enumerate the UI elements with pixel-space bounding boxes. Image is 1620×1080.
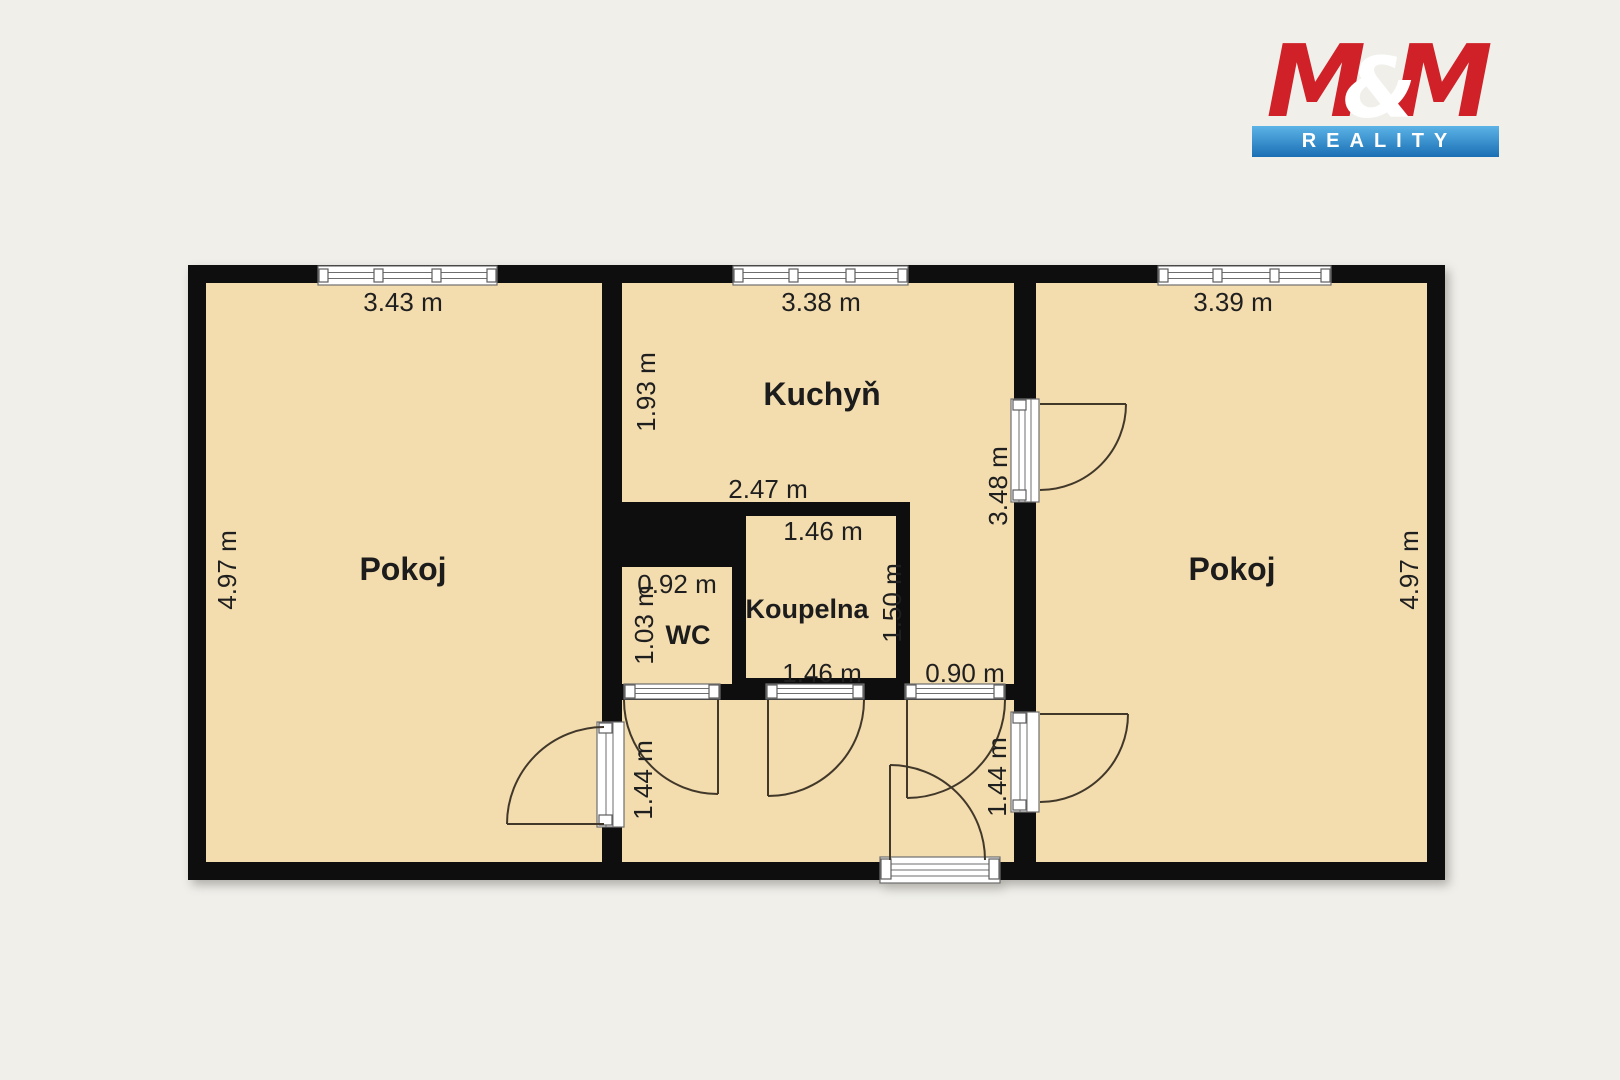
- dim-bath-bottom: 1.46 m: [782, 658, 862, 688]
- dim-top-left: 3.43 m: [363, 287, 443, 317]
- floorplan: Pokoj Kuchyň Koupelna WC Pokoj 3.43 m 3.…: [0, 0, 1620, 1080]
- room-label-koupelna: Koupelna: [745, 594, 869, 624]
- dim-side-left: 4.97 m: [212, 530, 242, 610]
- dim-hall-right: 1.44 m: [982, 737, 1012, 817]
- logo-ampersand: &: [1343, 44, 1408, 132]
- dim-kitchen-bottom: 2.47 m: [728, 474, 808, 504]
- window-left-room: [318, 266, 497, 285]
- floorplan-drawing: Pokoj Kuchyň Koupelna WC Pokoj 3.43 m 3.…: [188, 265, 1445, 883]
- page: { "logo": { "m1": "M", "amp": "&", "m2":…: [0, 0, 1620, 1080]
- dim-wc-left: 1.03 m: [629, 585, 659, 665]
- mm-reality-logo: M & M REALITY: [1252, 38, 1499, 157]
- dim-side-right: 4.97 m: [1394, 530, 1424, 610]
- logo-mm-icon: M & M: [1252, 38, 1499, 126]
- room-label-wc: WC: [666, 620, 711, 650]
- dim-kitchen-right: 3.48 m: [983, 446, 1013, 526]
- dim-hall-left: 1.44 m: [628, 740, 658, 820]
- room-label-kuchyn: Kuchyň: [763, 376, 880, 412]
- room-label-pokoj-right: Pokoj: [1188, 551, 1275, 587]
- dim-kitchen-left: 1.93 m: [631, 352, 661, 432]
- dim-hall-opening: 0.90 m: [925, 658, 1005, 688]
- room-label-pokoj-left: Pokoj: [359, 551, 446, 587]
- dim-bath-top: 1.46 m: [783, 516, 863, 546]
- dim-bath-right: 1.50 m: [877, 563, 907, 643]
- dim-top-right: 3.39 m: [1193, 287, 1273, 317]
- window-kitchen: [733, 266, 908, 285]
- window-right-room: [1158, 266, 1331, 285]
- dim-top-mid: 3.38 m: [781, 287, 861, 317]
